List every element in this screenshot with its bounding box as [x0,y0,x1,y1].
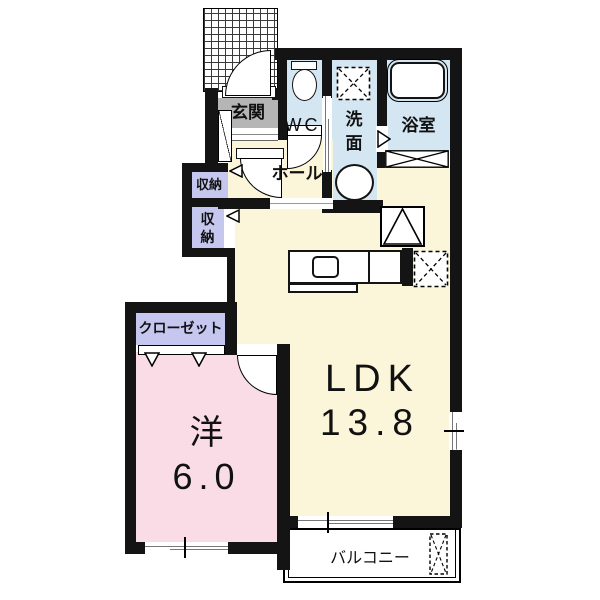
wall-wc-washroom-upper [322,60,332,98]
ldk-balcony-window [298,518,393,527]
wc-label: WC [283,114,322,137]
kitchen-counter [288,250,402,284]
storage-upper-label: 収納 [190,177,228,193]
storage-upper-door-swing-icon [229,164,243,178]
wall-closet-right [225,302,237,355]
bathroom-label: 浴室 [387,115,450,136]
wall-western-right [277,344,290,570]
wall-closet-top [125,302,235,313]
refrigerator-space-icon [380,206,425,247]
ldk-side-window-tick [444,430,464,432]
wall-storage-top [182,163,228,172]
bath-hatch-crossed-box-icon [385,150,449,168]
toilet-bowl [292,69,317,101]
western-room-window [145,543,228,553]
kitchen-counter-divider [368,252,370,282]
wall-ldk-bottom-right [393,516,462,528]
wall-closet-left [125,302,136,552]
balcony-label: バルコニー [300,549,440,569]
storage-lower-label: 収納 [199,210,216,246]
bathtub [390,62,445,99]
wall-bath-bottom-stub [377,150,385,168]
washroom-sliding-door [323,96,331,172]
western-window-tick [184,537,186,558]
floor-plan: 玄関 WC 洗面 浴室 ホール 収納 収納 クローゼット LDK 13.8 洋 … [0,0,600,600]
kitchen-appliance-space-icon [413,250,449,288]
wall-western-bottom-left [125,542,145,554]
genkan-label: 玄関 [218,102,278,123]
kitchen-sink [312,256,339,278]
wall-right-upper [450,48,462,412]
washroom-label: 洗面 [344,108,364,156]
wall-storage-mid [182,198,228,207]
wall-top [275,48,462,60]
closet-fold-mark-right-icon [191,352,207,367]
ldk-room-right [377,166,450,211]
western-room-size-label: 6.0 [136,454,277,499]
hall-label: ホール [257,163,337,184]
wall-ldk-bottom-left [277,516,298,528]
hall-ldk-opening [270,198,333,209]
kitchen-counter-return [288,283,358,293]
western-room-label: 洋 [136,412,277,455]
closet-fold-mark-left-icon [144,352,160,367]
ldk-size-label: 13.8 [300,400,440,446]
closet-label: クローゼット [136,320,225,338]
ldk-label: LDK [305,356,440,404]
wall-western-bottom-right [228,542,290,554]
storage-lower-door-swing-icon [226,209,240,223]
washbasin [335,164,374,201]
wall-porch-left [205,88,218,166]
washing-machine-pan-icon [336,66,371,101]
ldk-window-tick [327,512,329,533]
western-door-opening [237,344,277,355]
wall-kitchen-stub [402,248,413,286]
